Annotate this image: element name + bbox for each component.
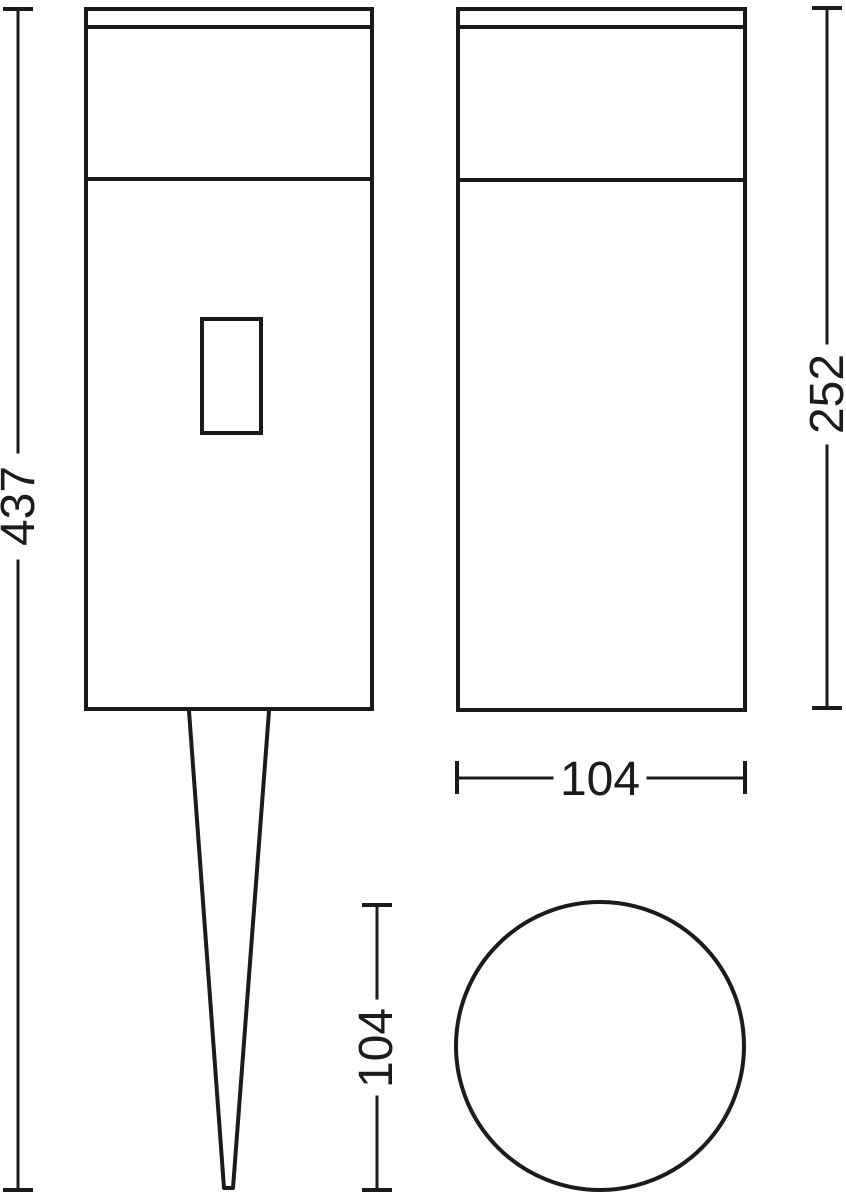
technical-drawing-page: 437 252 104 104 — [0, 0, 846, 1200]
dimension-label-total-height: 437 — [0, 466, 45, 546]
dimension-label-housing-diameter: 104 — [350, 1008, 403, 1088]
dimension-label-housing-width: 104 — [560, 753, 640, 806]
dimension-label-housing-height: 252 — [801, 354, 846, 434]
dimension-drawing: 437 252 104 104 — [0, 0, 846, 1200]
